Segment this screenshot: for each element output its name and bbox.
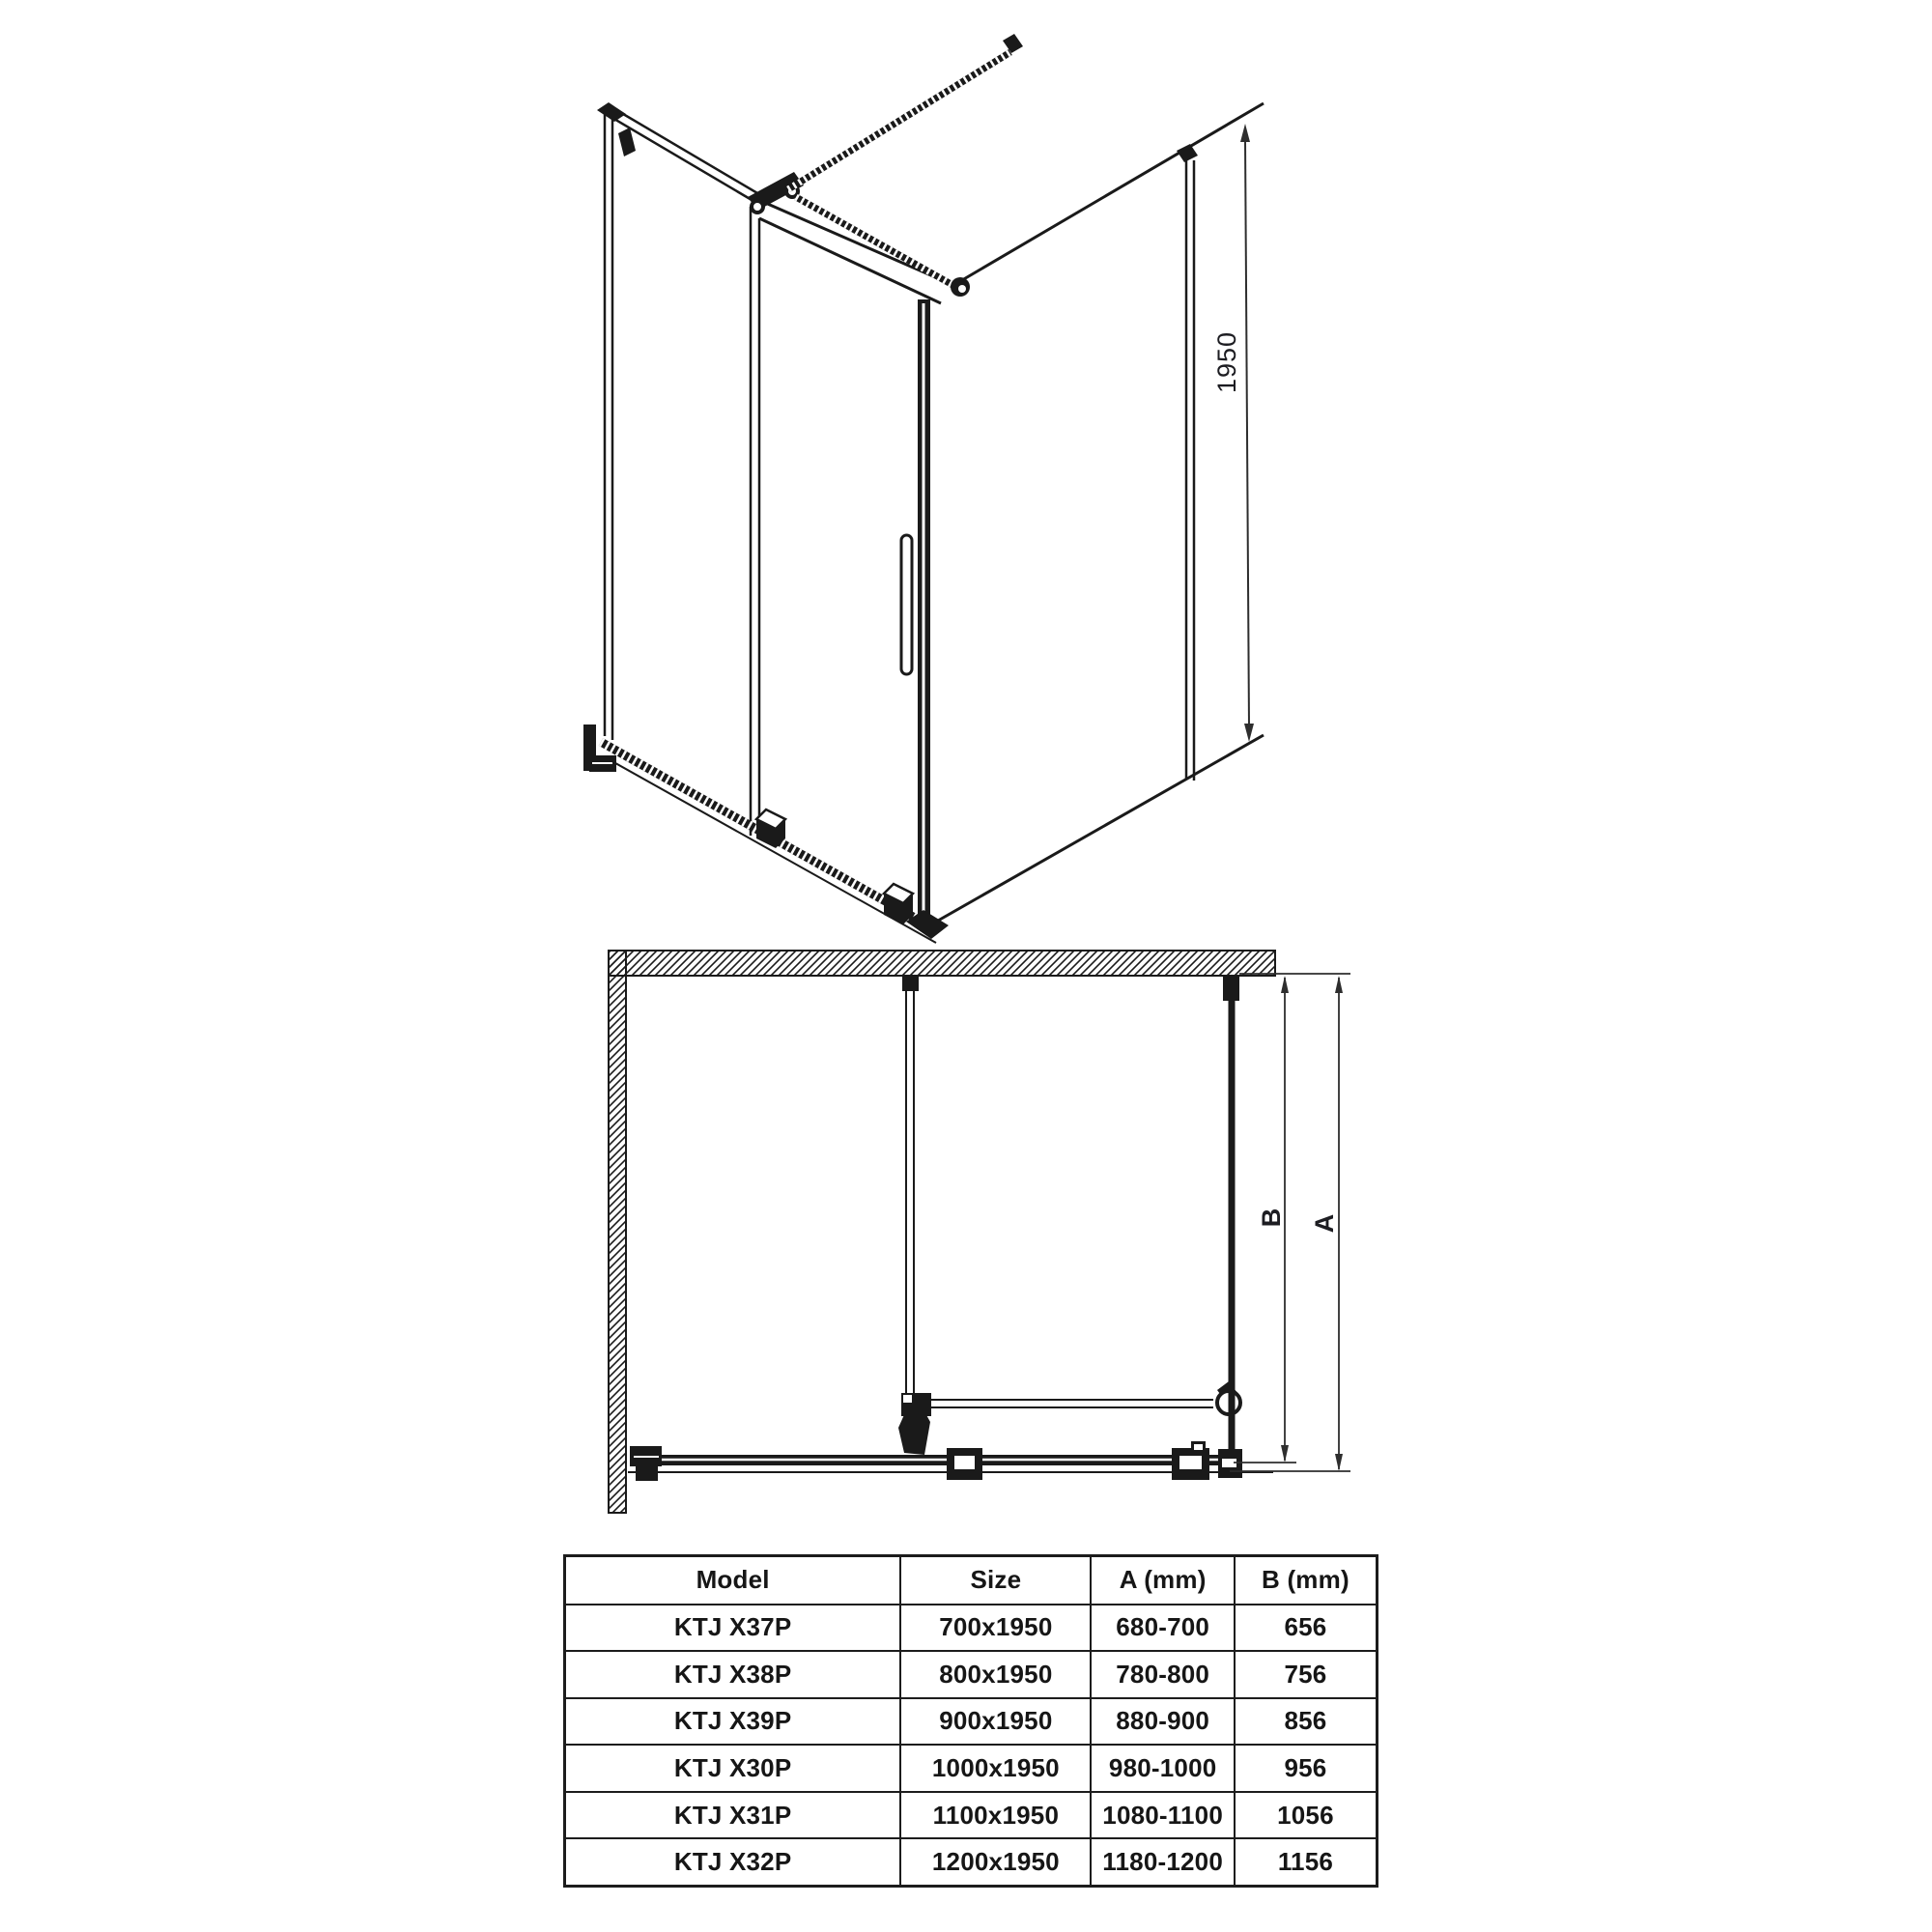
depth-dimension-label: B	[1257, 1207, 1286, 1228]
left-wall	[609, 951, 626, 1513]
spec-sheet-page: 1950	[0, 0, 1932, 1932]
cell-size: 1100x1950	[900, 1792, 1091, 1839]
spec-table: Model Size A (mm) B (mm) KTJ X37P 700x19…	[563, 1554, 1378, 1888]
height-dimension	[1240, 124, 1254, 742]
cell-a: 780-800	[1091, 1651, 1234, 1698]
cell-model: KTJ X30P	[565, 1745, 901, 1792]
cell-b: 756	[1235, 1651, 1378, 1698]
enclosure-3d	[583, 34, 1264, 943]
cell-size: 900x1950	[900, 1698, 1091, 1746]
cell-b: 856	[1235, 1698, 1378, 1746]
cell-model: KTJ X38P	[565, 1651, 901, 1698]
side-panel-top-edge	[962, 103, 1264, 280]
cell-b: 1156	[1235, 1838, 1378, 1886]
cell-b: 656	[1235, 1605, 1378, 1652]
cell-size: 1000x1950	[900, 1745, 1091, 1792]
col-header-a: A (mm)	[1091, 1556, 1234, 1605]
col-header-b: B (mm)	[1235, 1556, 1378, 1605]
table-row: KTJ X38P 800x1950 780-800 756	[565, 1651, 1378, 1698]
perspective-view-drawing: 1950	[541, 19, 1294, 966]
cell-a: 680-700	[1091, 1605, 1234, 1652]
cell-size: 800x1950	[900, 1651, 1091, 1698]
width-dimension-label: A	[1310, 1213, 1339, 1234]
back-wall	[609, 951, 1275, 976]
cell-model: KTJ X39P	[565, 1698, 901, 1746]
table-row: KTJ X32P 1200x1950 1180-1200 1156	[565, 1838, 1378, 1886]
roller-block-right	[884, 884, 913, 924]
table-row: KTJ X30P 1000x1950 980-1000 956	[565, 1745, 1378, 1792]
door-handle	[901, 535, 912, 674]
roller-block-left	[756, 810, 785, 848]
cell-model: KTJ X31P	[565, 1792, 901, 1839]
plan-stabilizer-bar	[901, 1381, 1240, 1416]
fixed-panel-top-edge	[612, 111, 769, 207]
col-header-model: Model	[565, 1556, 901, 1605]
left-wall-profile	[583, 102, 636, 772]
table-header-row: Model Size A (mm) B (mm)	[565, 1556, 1378, 1605]
cell-size: 1200x1950	[900, 1838, 1091, 1886]
cell-a: 880-900	[1091, 1698, 1234, 1746]
table-row: KTJ X39P 900x1950 880-900 856	[565, 1698, 1378, 1746]
plan-view-drawing: B A	[580, 927, 1381, 1526]
cell-b: 1056	[1235, 1792, 1378, 1839]
support-bar-long	[788, 34, 1023, 189]
plan-support-bar	[898, 975, 930, 1455]
support-bar-end-cap	[1003, 34, 1023, 53]
cell-model: KTJ X37P	[565, 1605, 901, 1652]
cell-b: 956	[1235, 1745, 1378, 1792]
cell-a: 1180-1200	[1091, 1838, 1234, 1886]
col-header-size: Size	[900, 1556, 1091, 1605]
hinge-block	[618, 128, 636, 156]
door-stile	[918, 299, 930, 927]
cell-a: 980-1000	[1091, 1745, 1234, 1792]
top-sliding-rail	[759, 202, 957, 303]
height-dimension-label: 1950	[1212, 331, 1241, 393]
enclosure-plan	[609, 951, 1350, 1513]
cell-size: 700x1950	[900, 1605, 1091, 1652]
junction-post	[751, 207, 759, 838]
cell-a: 1080-1100	[1091, 1792, 1234, 1839]
table-row: KTJ X31P 1100x1950 1080-1100 1056	[565, 1792, 1378, 1839]
table-row: KTJ X37P 700x1950 680-700 656	[565, 1605, 1378, 1652]
side-panel-bottom-edge	[931, 735, 1264, 924]
plan-bottom-rail	[628, 1441, 1273, 1481]
cell-model: KTJ X32P	[565, 1838, 901, 1886]
side-panel	[931, 103, 1264, 924]
